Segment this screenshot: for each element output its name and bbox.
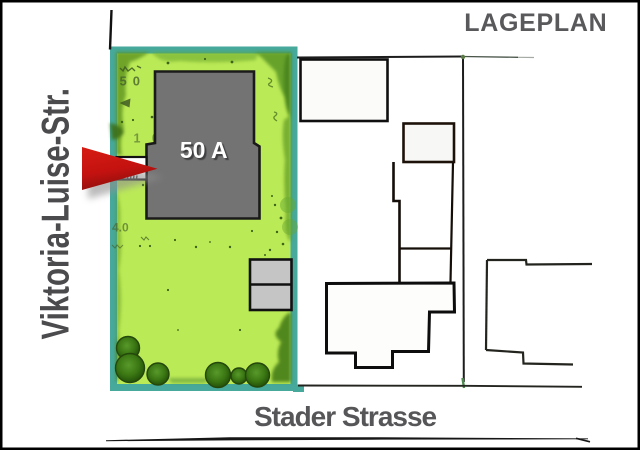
svg-text:50: 50 — [120, 74, 146, 89]
svg-text:Viktoria-Luise-Str.: Viktoria-Luise-Str. — [35, 88, 78, 339]
svg-text:4.0: 4.0 — [112, 221, 129, 235]
svg-text:Stader Strasse: Stader Strasse — [254, 401, 437, 432]
svg-text:LAGEPLAN: LAGEPLAN — [464, 9, 607, 37]
svg-text:50 A: 50 A — [180, 137, 228, 163]
